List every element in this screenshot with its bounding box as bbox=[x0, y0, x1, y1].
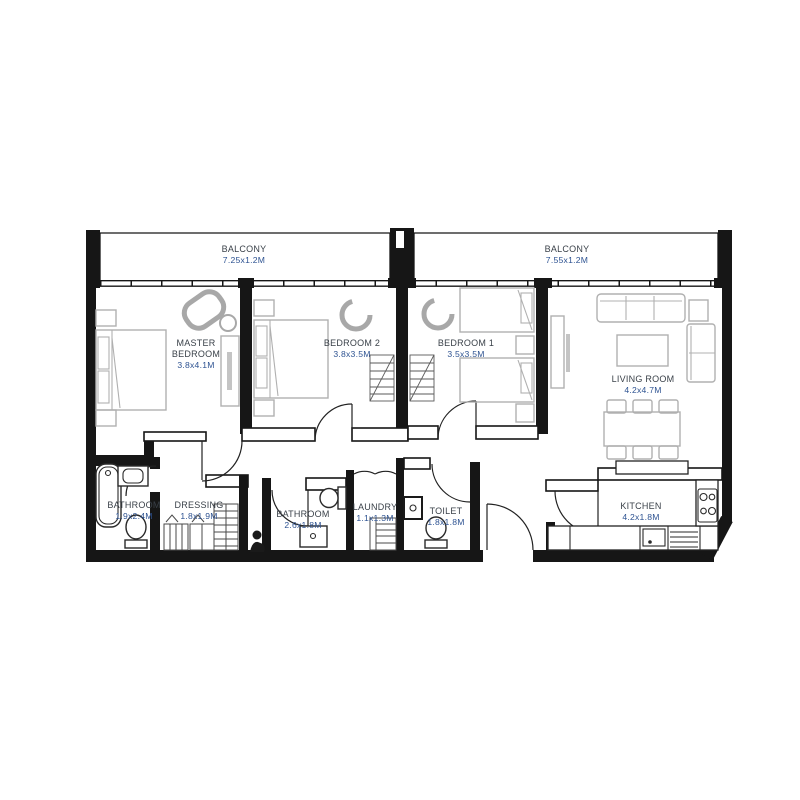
toilet-dims: 1.8x1.8M bbox=[427, 517, 464, 527]
kitchen-counter bbox=[548, 526, 718, 550]
bedroom2-furniture bbox=[254, 300, 394, 416]
wall-bedroom2-bottom-right bbox=[352, 428, 408, 441]
dining-chair bbox=[659, 446, 678, 459]
wardrobe-shelf bbox=[370, 355, 394, 401]
wall-master-bedroom2 bbox=[240, 286, 252, 434]
toilet-door bbox=[432, 464, 470, 502]
bedroom2-dims: 3.8x3.5M bbox=[333, 349, 370, 359]
living-room-furniture bbox=[551, 294, 715, 474]
wall-toilet-right bbox=[470, 462, 480, 552]
bathroom2-dims: 2.6x1.8M bbox=[284, 520, 321, 530]
balcony-left-label: BALCONY bbox=[222, 244, 267, 254]
wall-bedroom1-bottom-right bbox=[476, 426, 538, 439]
window-wall bbox=[86, 278, 732, 288]
sink-icon bbox=[118, 466, 148, 486]
kitchen-side-counter bbox=[696, 480, 718, 526]
laundry-label: LAUNDRY bbox=[353, 502, 398, 512]
bathroom-master-dims: 1.9x2.4M bbox=[115, 511, 152, 521]
sink-icon bbox=[404, 497, 422, 519]
lounge-chair-icon bbox=[180, 287, 236, 333]
floor-plan-svg: BALCONY 7.25x1.2M BALCONY 7.55x1.2M MAST… bbox=[0, 0, 800, 800]
chair-icon bbox=[342, 301, 370, 329]
entrance-door bbox=[487, 504, 533, 550]
nightstand bbox=[254, 300, 274, 316]
nightstand bbox=[96, 310, 116, 326]
dining-chair bbox=[607, 446, 626, 459]
outer-wall-left bbox=[86, 286, 96, 552]
dining-chair bbox=[633, 446, 652, 459]
dining-chair bbox=[607, 400, 626, 413]
wall-bathroom-dressing-top bbox=[150, 457, 160, 469]
outer-wall-right bbox=[722, 286, 732, 522]
wall-toilet-top bbox=[404, 458, 430, 469]
dining-table bbox=[604, 412, 680, 446]
nightstand bbox=[516, 404, 534, 422]
sofa bbox=[597, 294, 685, 322]
wardrobe bbox=[221, 336, 239, 406]
master-bedroom-label-line2: BEDROOM bbox=[172, 349, 220, 359]
wall-bedroom2-bedroom1 bbox=[396, 286, 408, 438]
nightstand bbox=[96, 410, 116, 426]
balcony-right-label: BALCONY bbox=[545, 244, 590, 254]
nightstand bbox=[516, 336, 534, 354]
balcony-left-dims: 7.25x1.2M bbox=[223, 255, 265, 265]
dressing-dims: 1.8x1.9M bbox=[180, 511, 217, 521]
twin-bed-1 bbox=[460, 288, 534, 332]
nightstand bbox=[254, 400, 274, 416]
living-room-dims: 4.2x4.7M bbox=[624, 385, 661, 395]
balcony-right-dims: 7.55x1.2M bbox=[546, 255, 588, 265]
armchair bbox=[687, 324, 715, 382]
wall-master-bottom bbox=[144, 432, 206, 441]
wall-master-bathroom bbox=[86, 455, 154, 466]
bathroom2-label: BATHROOM bbox=[276, 509, 329, 519]
dining-set bbox=[604, 400, 680, 459]
bathroom-master-label: BATHROOM bbox=[107, 500, 160, 510]
laundry-dims: 1.1x1.3M bbox=[356, 513, 393, 523]
tv-console bbox=[616, 461, 688, 474]
floor-plan-page: BALCONY 7.25x1.2M BALCONY 7.55x1.2M MAST… bbox=[0, 0, 800, 800]
wall-bedroom1-bottom-left bbox=[408, 426, 438, 439]
wall-bathroom2-left bbox=[262, 478, 271, 552]
outer-wall-bottom-right bbox=[533, 550, 714, 562]
master-bed bbox=[96, 330, 166, 410]
wall-bedroom2-bottom-left bbox=[242, 428, 315, 441]
wall-kitchen-stub bbox=[546, 480, 598, 491]
twin-bed-2 bbox=[460, 358, 534, 402]
dressing-label: DRESSING bbox=[174, 500, 223, 510]
tv-cabinet bbox=[551, 316, 570, 388]
kitchen-dims: 4.2x1.8M bbox=[622, 512, 659, 522]
wall-dressing-right bbox=[239, 475, 248, 552]
wall-bedroom1-living bbox=[536, 286, 548, 434]
master-bedroom-dims: 3.8x4.1M bbox=[177, 360, 214, 370]
side-table bbox=[689, 300, 708, 321]
outer-wall-bottom-left bbox=[86, 550, 483, 562]
toilet-label: TOILET bbox=[430, 506, 463, 516]
toilet-icon bbox=[320, 487, 346, 509]
living-room-label: LIVING ROOM bbox=[612, 374, 675, 384]
chair-icon bbox=[424, 300, 452, 328]
bedroom2-label: BEDROOM 2 bbox=[324, 338, 380, 348]
bedroom1-dims: 3.5x3.5M bbox=[447, 349, 484, 359]
bedroom2-door bbox=[315, 404, 352, 441]
bedroom1-door bbox=[438, 401, 476, 439]
coffee-table bbox=[617, 335, 668, 366]
laundry-bifold-door bbox=[354, 471, 396, 474]
bedroom1-label: BEDROOM 1 bbox=[438, 338, 494, 348]
kitchen-label: KITCHEN bbox=[620, 501, 661, 511]
wardrobe-shelf bbox=[410, 355, 434, 401]
dining-chair bbox=[633, 400, 652, 413]
master-bedroom-label-line1: MASTER bbox=[176, 338, 215, 348]
dining-chair bbox=[659, 400, 678, 413]
bedroom2-bed bbox=[254, 320, 328, 398]
